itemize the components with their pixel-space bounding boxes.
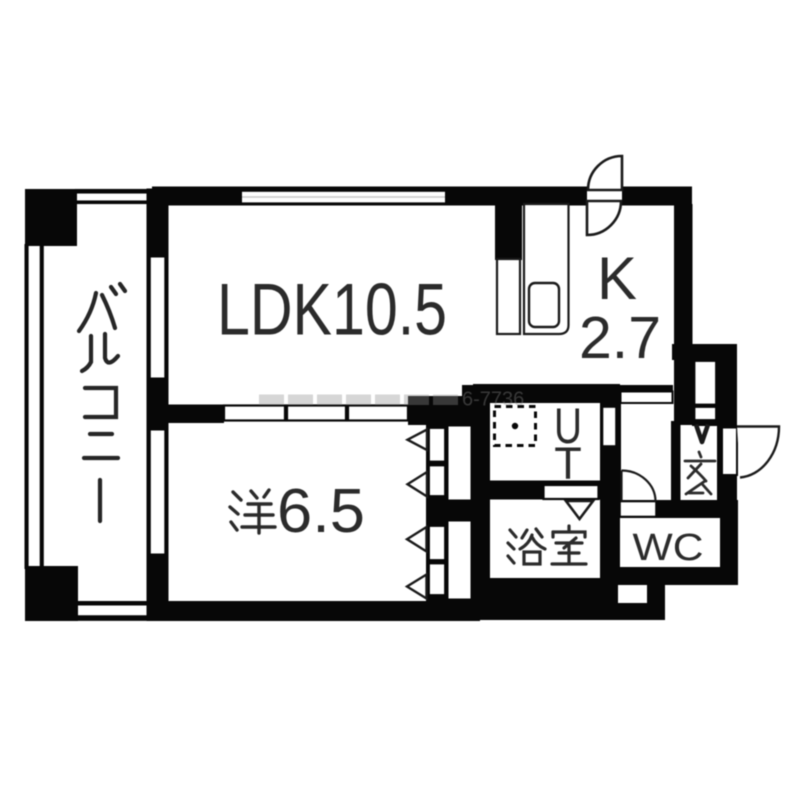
svg-text:6-7736: 6-7736	[462, 389, 524, 411]
svg-text:2.7: 2.7	[579, 305, 661, 371]
svg-text:T: T	[554, 438, 582, 489]
svg-text:K: K	[597, 245, 637, 312]
svg-text:6.5: 6.5	[277, 477, 365, 546]
svg-text:WC: WC	[633, 527, 704, 569]
svg-text:LDK10.5: LDK10.5	[217, 270, 447, 351]
